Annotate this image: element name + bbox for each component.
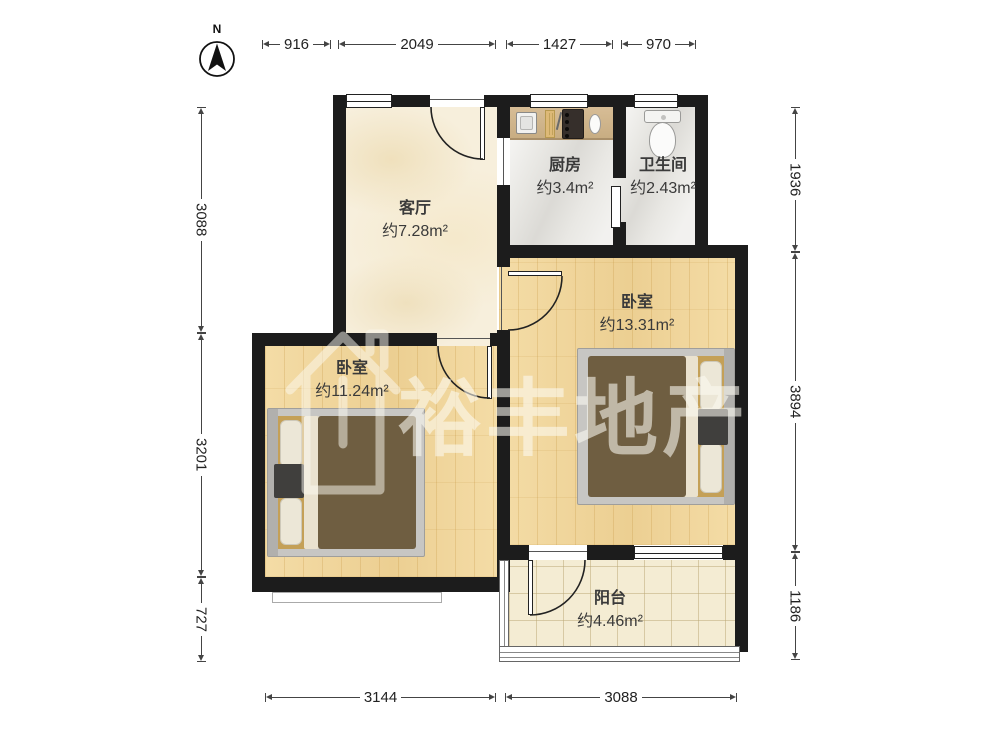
- room-area: 约13.31m²: [572, 314, 702, 338]
- dimension-label: 970: [642, 38, 675, 51]
- dimension-top-4: 970: [621, 38, 696, 50]
- dimension-label: 1427: [539, 38, 580, 51]
- room-label-bedroom-right: 卧室 约13.31m²: [572, 292, 702, 338]
- wall-segment: [484, 95, 530, 107]
- floorplan-canvas: N 916 2049 1427 970 3088 3201 727: [0, 0, 1000, 750]
- wall-segment: [497, 545, 529, 560]
- room-label-balcony: 阳台 约4.46m²: [545, 588, 675, 634]
- cutting-board-icon: [545, 110, 555, 138]
- door-leaf: [487, 346, 492, 399]
- dimension-left-2: 3201: [195, 333, 207, 577]
- window: [634, 546, 723, 559]
- wall-segment: [588, 95, 634, 107]
- dimension-label: 3088: [600, 691, 641, 704]
- room-area: 约7.28m²: [350, 220, 480, 244]
- wall-segment: [497, 245, 748, 258]
- dimension-right-3: 1186: [789, 552, 801, 660]
- room-name: 阳台: [545, 588, 675, 610]
- room-area: 约2.43m²: [598, 177, 728, 201]
- window-sill: [272, 592, 442, 603]
- dimension-label: 3894: [789, 381, 802, 422]
- window: [530, 94, 588, 108]
- north-compass: N: [198, 40, 236, 78]
- wall-segment: [497, 107, 510, 138]
- dimension-left-1: 3088: [195, 107, 207, 333]
- dimension-top-2: 2049: [338, 38, 496, 50]
- dimension-label: 2049: [396, 38, 437, 51]
- dimension-top-1: 916: [262, 38, 331, 50]
- wall-segment: [497, 330, 510, 577]
- door-leaf: [528, 560, 533, 615]
- door-leaf: [508, 271, 562, 276]
- dimension-label: 3144: [360, 691, 401, 704]
- dimension-top-3: 1427: [506, 38, 613, 50]
- dimension-label: 3201: [195, 434, 208, 475]
- wall-segment: [252, 333, 437, 346]
- room-label-bathroom: 卫生间 约2.43m²: [598, 155, 728, 201]
- dimension-label: 1936: [789, 159, 802, 200]
- room-area: 约4.46m²: [545, 610, 675, 634]
- dimension-label: 1186: [789, 586, 802, 626]
- wall-segment: [587, 545, 634, 560]
- room-name: 客厅: [350, 198, 480, 220]
- door-threshold: [437, 338, 490, 339]
- wall-segment: [333, 95, 346, 346]
- door-threshold: [430, 99, 484, 100]
- window: [634, 94, 678, 108]
- door-threshold: [501, 267, 502, 330]
- bed-icon: [267, 408, 425, 557]
- door-leaf: [480, 107, 485, 160]
- toilet-bowl-icon: [649, 122, 676, 158]
- room-label-living: 客厅 约7.28m²: [350, 198, 480, 244]
- sink-icon: [516, 112, 537, 134]
- bed-icon: [577, 348, 735, 505]
- balcony-railing: [499, 646, 740, 662]
- dimension-right-1: 1936: [789, 107, 801, 252]
- room-name: 卧室: [572, 292, 702, 314]
- wall-segment: [392, 95, 430, 107]
- wall-segment: [252, 333, 265, 592]
- dimension-bottom-2: 3088: [505, 691, 737, 703]
- dimension-right-2: 3894: [789, 252, 801, 552]
- wall-segment: [735, 245, 748, 652]
- stove-icon: [562, 109, 584, 139]
- wall-segment: [252, 577, 510, 592]
- dimension-label: 727: [195, 603, 208, 636]
- room-name: 卫生间: [598, 155, 728, 177]
- room-label-bedroom-left: 卧室 约11.24m²: [287, 358, 417, 404]
- balcony-railing: [499, 560, 509, 650]
- dimension-label: 916: [280, 38, 313, 51]
- room-area: 约11.24m²: [287, 380, 417, 404]
- room-name: 卧室: [287, 358, 417, 380]
- wall-segment: [723, 545, 748, 560]
- north-label: N: [209, 22, 225, 36]
- door-threshold: [529, 551, 587, 552]
- dimension-label: 3088: [195, 199, 208, 240]
- compass-icon: [198, 40, 236, 78]
- window: [346, 94, 392, 108]
- basin-icon: [589, 114, 601, 134]
- dimension-bottom-1: 3144: [265, 691, 496, 703]
- dimension-left-3: 727: [195, 577, 207, 662]
